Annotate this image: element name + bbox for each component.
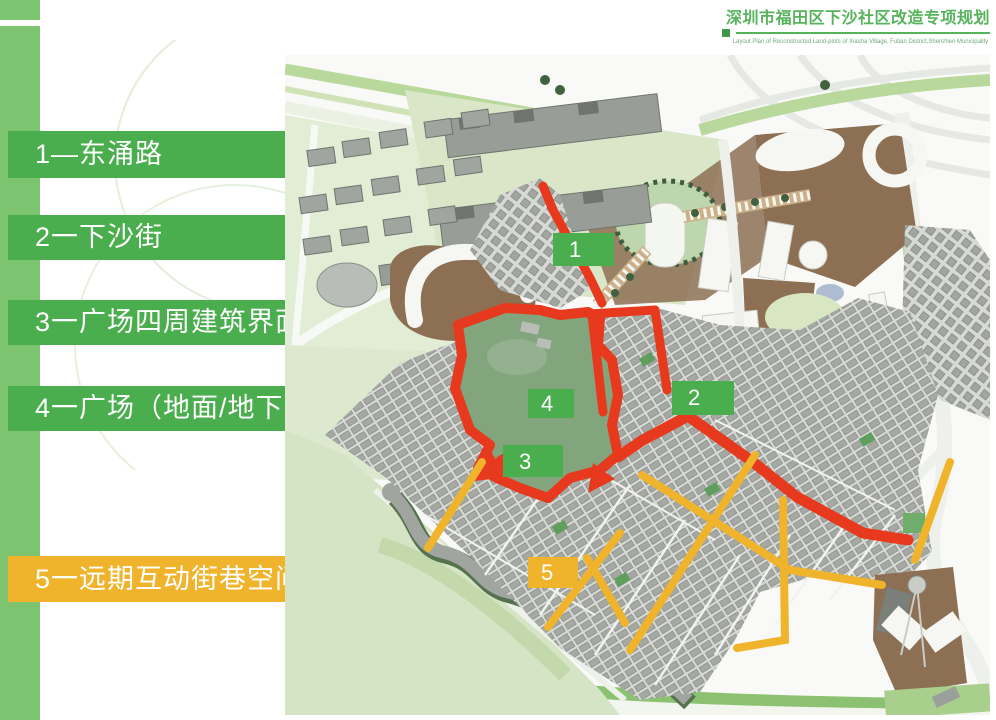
marker-5-label: 5: [541, 560, 553, 585]
slide: { "header": { "title": "深圳市福田区下沙社区改造专项规划…: [0, 0, 996, 720]
header-rule: [722, 29, 990, 37]
plan-map: 1 2 3 4 5: [285, 55, 990, 715]
header: 深圳市福田区下沙社区改造专项规划 Layout Plan of Reconstr…: [722, 4, 990, 45]
page-subtitle: Layout Plan of Reconstructed Land-plots …: [733, 38, 980, 44]
plan-map-svg: 1 2 3 4 5: [285, 55, 990, 715]
marker-1-label: 1: [569, 237, 581, 262]
legend-item-1: 1—东涌路: [8, 131, 292, 178]
legend-item-3: 3一广场四周建筑界面: [8, 300, 292, 345]
marker-3-box: [503, 445, 563, 477]
marker-4-label: 4: [541, 391, 553, 416]
marker-2-label: 2: [688, 385, 700, 410]
legend-item-2: 2一下沙街: [8, 215, 292, 260]
marker-3-label: 3: [519, 449, 531, 474]
marker-1-box: [553, 233, 614, 266]
sidebar-accent-top: [0, 0, 40, 20]
marker-2-box: [672, 381, 734, 415]
header-underline: [736, 32, 990, 34]
square-bullet-icon: [722, 29, 730, 37]
legend-item-4: 4一广场（地面/地下）: [8, 386, 292, 431]
page-title: 深圳市福田区下沙社区改造专项规划: [722, 4, 990, 28]
legend-item-5: 5一远期互动街巷空间: [8, 556, 297, 602]
